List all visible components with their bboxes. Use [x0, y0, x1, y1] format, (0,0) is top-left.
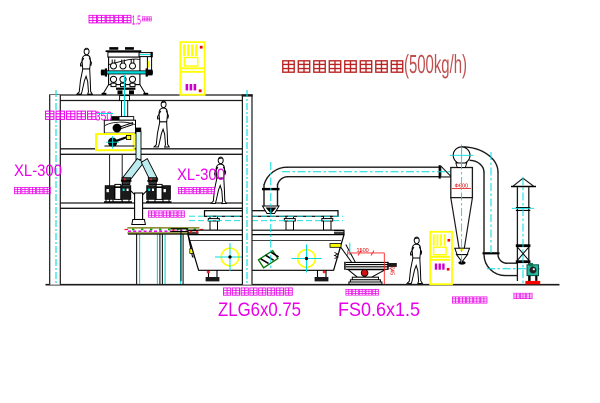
svg-text:XL-300: XL-300 — [177, 165, 225, 184]
svg-text:ZLG6x0.75: ZLG6x0.75 — [218, 300, 301, 321]
svg-text:(500kg/h): (500kg/h) — [404, 49, 467, 79]
svg-text:745: 745 — [389, 266, 395, 275]
svg-text:XL-300: XL-300 — [14, 161, 62, 180]
svg-text:FS0.6x1.5: FS0.6x1.5 — [338, 300, 420, 321]
svg-text:1.5: 1.5 — [132, 13, 141, 28]
svg-text:1500: 1500 — [357, 248, 369, 254]
svg-text:350: 350 — [95, 110, 112, 124]
